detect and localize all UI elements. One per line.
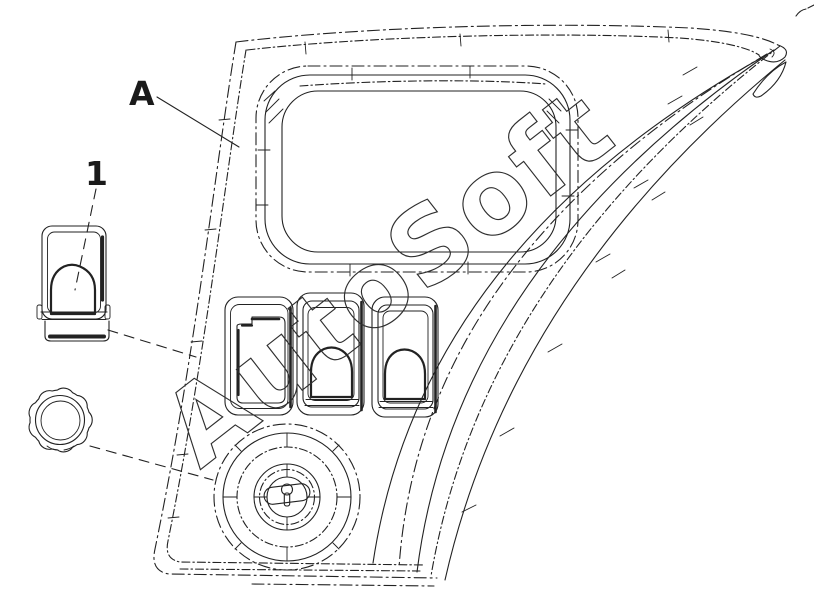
panel-tip-lens	[753, 62, 786, 97]
panel-outline	[154, 25, 787, 586]
parts-diagram: A 1 AutoSoft	[0, 0, 814, 608]
leader-a	[157, 97, 239, 147]
part1-rocker-switch	[37, 226, 110, 341]
watermark-text: AutoSoft	[140, 65, 635, 489]
instrument-side-panel	[154, 25, 787, 586]
corner-stray-mark	[796, 5, 814, 16]
knob-face	[41, 401, 80, 440]
key-cylinder	[267, 477, 307, 517]
diagram-canvas: A 1 AutoSoft	[0, 0, 814, 608]
switch-rocker-arch	[385, 350, 425, 400]
panel-bottom-line-3	[252, 584, 434, 586]
opening-top-detail	[300, 81, 546, 86]
ignition-ring-3	[237, 447, 337, 547]
callout-1[interactable]: 1	[85, 154, 108, 193]
knurled-knob	[29, 388, 92, 452]
leader-1	[75, 189, 96, 290]
leader-part1-to-slot	[108, 330, 196, 357]
panel-top-inner-edge	[247, 35, 759, 55]
knob-scalloped-edge	[29, 388, 92, 452]
ignition-bezel-inner	[260, 470, 315, 525]
part1-rocker-arch	[51, 265, 95, 314]
panel-bottom-line-2	[180, 569, 420, 571]
knob-inner-ring	[36, 396, 85, 445]
callout-a[interactable]: A	[129, 74, 155, 113]
